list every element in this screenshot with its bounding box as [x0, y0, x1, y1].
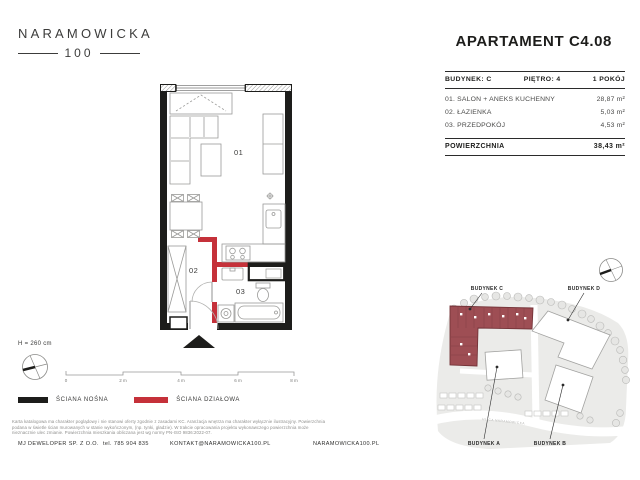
ceiling-height-note: H = 260 cm: [18, 341, 52, 347]
partition-swatch: [134, 397, 168, 403]
disclaimer-text: Karta katalogowa ma charakter poglądowy …: [12, 419, 412, 436]
installation-shaft: [248, 262, 285, 280]
washbasin: [222, 268, 243, 280]
room-row: 03. PRZEDPOKÓJ 4,53 m²: [445, 119, 625, 132]
hall-wardrobe: [168, 246, 186, 312]
building-c-label: BUDYNEK C: [471, 286, 504, 292]
logo-line-left: [18, 53, 58, 54]
furniture: [168, 93, 285, 329]
room-label-02: 02: [189, 266, 198, 275]
site-compass-icon: [600, 259, 623, 282]
window: [176, 85, 246, 92]
logo-line-right: [100, 53, 140, 54]
partition-label: ŚCIANA DZIAŁOWA: [176, 397, 240, 403]
page-title: APARTAMENT C4.08: [455, 33, 612, 50]
tall-cabinet: [263, 114, 283, 174]
load-bearing-label: ŚCIANA NOŚNA: [56, 397, 108, 403]
top-wall: [161, 85, 292, 92]
room-row: 01. SALON + ANEKS KUCHENNY 28,87 m²: [445, 93, 625, 106]
building-d-label: BUDYNEK D: [568, 286, 601, 292]
room-label-01: 01: [234, 148, 243, 157]
dining-set: [170, 195, 202, 238]
floor-label: PIĘTRO: 4: [524, 76, 561, 83]
room-area: 28,87 m²: [597, 93, 625, 106]
room-name: 03. PRZEDPOKÓJ: [445, 119, 505, 132]
total-area-row: POWIERZCHNIA 38,43 m²: [445, 138, 625, 156]
building-label: BUDYNEK: C: [445, 76, 492, 83]
info-table-header: BUDYNEK: C PIĘTRO: 4 1 POKÓJ: [445, 71, 625, 89]
company-name: MJ DEWELOPER SP. Z O.O.: [18, 441, 99, 447]
brand-name: NARAMOWICKA: [18, 26, 140, 41]
room-number-labels: 01 02 03: [189, 148, 245, 296]
scale-bar: 0 2 m 4 m 6 m 8 m: [62, 368, 298, 384]
compass-icon: [20, 352, 50, 382]
room-row: 02. ŁAZIENKA 5,03 m²: [445, 106, 625, 119]
entrance-arrow-icon: [183, 335, 215, 348]
scale-tick-8m: 8 m: [290, 378, 298, 383]
brand-logo: NARAMOWICKA 100: [18, 26, 140, 60]
room-area: 4,53 m²: [601, 119, 625, 132]
room-area: 5,03 m²: [601, 106, 625, 119]
building-b-label: BUDYNEK B: [534, 441, 567, 447]
ceiling-light-icon: [267, 193, 274, 200]
building-a-shape: [485, 350, 523, 380]
bathroom-door: [192, 282, 212, 302]
brand-number-row: 100: [18, 46, 140, 60]
scale-tick-0: 0: [65, 378, 68, 383]
entrance-niche: [170, 317, 187, 329]
scale-tick-6m: 6 m: [234, 378, 242, 383]
total-label: POWIERZCHNIA: [445, 143, 505, 150]
load-bearing-walls: [160, 92, 292, 330]
stove: [226, 246, 250, 260]
disclaimer-line: nieznacznie ulec zmianie. Powierzchnia m…: [12, 430, 412, 436]
coffee-table: [201, 144, 221, 176]
website-url: NARAMOWICKA100.PL: [313, 441, 379, 447]
load-bearing-swatch: [18, 397, 48, 403]
bathtub: [235, 303, 283, 322]
apartment-info-table: BUDYNEK: C PIĘTRO: 4 1 POKÓJ 01. SALON +…: [445, 71, 625, 156]
washing-machine: [218, 305, 234, 322]
brand-number: 100: [64, 46, 93, 60]
room-list: 01. SALON + ANEKS KUCHENNY 28,87 m² 02. …: [445, 89, 625, 138]
toilet: [256, 283, 270, 302]
building-a-label: BUDYNEK A: [468, 441, 500, 447]
email-address: KONTAKT@NARAMOWICKA100.PL: [170, 441, 271, 447]
phone-number: tel. 785 904 835: [103, 441, 149, 447]
scale-tick-4m: 4 m: [177, 378, 185, 383]
scale-tick-2m: 2 m: [119, 378, 127, 383]
room-name: 01. SALON + ANEKS KUCHENNY: [445, 93, 555, 106]
room-name: 02. ŁAZIENKA: [445, 106, 492, 119]
floor-plan: 01 02 03: [160, 84, 292, 352]
wardrobe-under-window: [170, 93, 232, 114]
catalog-card: NARAMOWICKA 100 APARTAMENT C4.08 BUDYNEK…: [0, 0, 640, 480]
corner-sofa: [170, 116, 218, 184]
room-label-03: 03: [236, 287, 245, 296]
wall-legend: ŚCIANA NOŚNA ŚCIANA DZIAŁOWA: [18, 397, 240, 403]
rooms-label: 1 POKÓJ: [593, 76, 625, 83]
total-area: 38,43 m²: [594, 143, 625, 150]
site-map: BUDYNEK C BUDYNEK D BUDYNEK A BUDYNEK B …: [430, 253, 640, 460]
